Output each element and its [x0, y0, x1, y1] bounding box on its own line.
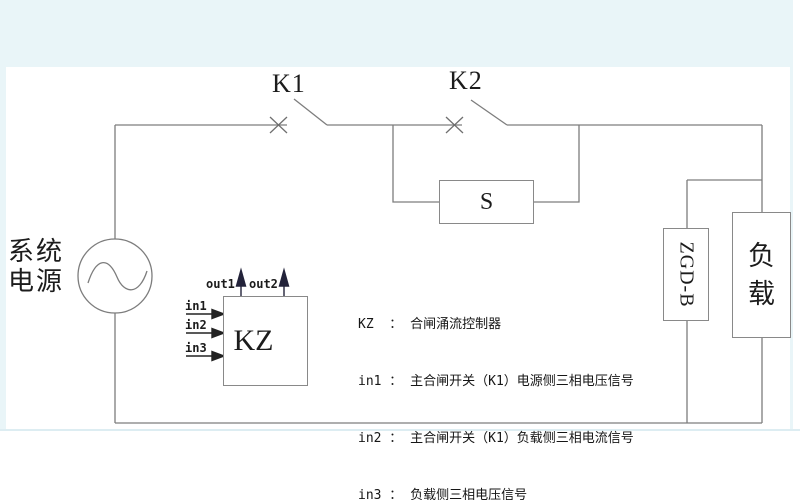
system-power-label: 系统 电源 [8, 237, 64, 297]
load-box: 负 载 [732, 212, 791, 338]
kz-port-out1-label: out1 [206, 278, 235, 290]
voltage-limiter-box: ZGD-B [663, 228, 709, 321]
kz-port-in3-label: in3 [185, 342, 207, 354]
switch-k2-label: K2 [449, 68, 483, 94]
system-power-label-line2: 电源 [8, 267, 64, 297]
system-power-label-line1: 系统 [8, 237, 64, 267]
switch-k1-blade [294, 99, 327, 125]
legend: KZ ： 合闸涌流控制器 in1 ： 主合闸开关（K1）电源侧三相电压信号 in… [358, 277, 634, 500]
ac-source-symbol [78, 239, 152, 313]
load-box-label-char1: 负 [748, 241, 775, 271]
legend-line-in3: in3 ： 负载侧三相电压信号 [358, 486, 634, 500]
switch-k1-label: K1 [272, 71, 306, 97]
kz-port-in1-label: in1 [185, 300, 207, 312]
kz-port-in2-label: in2 [185, 319, 207, 331]
suppressor-box: S [439, 180, 534, 224]
switch-k2-blade [471, 100, 507, 125]
controller-box-label: KZ [234, 324, 298, 358]
voltage-limiter-box-label: ZGD-B [675, 241, 698, 307]
kz-port-out2-label: out2 [249, 278, 278, 290]
out2-arrowhead-icon [280, 270, 289, 286]
out1-arrowhead-icon [237, 270, 246, 286]
legend-line-in2: in2 ： 主合闸开关（K1）负载侧三相电流信号 [358, 429, 634, 448]
legend-line-kz: KZ ： 合闸涌流控制器 [358, 315, 634, 334]
suppressor-box-label: S [480, 189, 493, 216]
schematic-page: K1 K2 系统 电源 out1 out2 in1 in2 in3 S KZ Z… [0, 0, 800, 500]
controller-box: KZ [223, 296, 308, 386]
ac-source-circle [78, 239, 152, 313]
sine-wave-icon [88, 263, 147, 290]
load-box-label-char2: 载 [748, 279, 775, 309]
legend-line-in1: in1 ： 主合闸开关（K1）电源侧三相电压信号 [358, 372, 634, 391]
